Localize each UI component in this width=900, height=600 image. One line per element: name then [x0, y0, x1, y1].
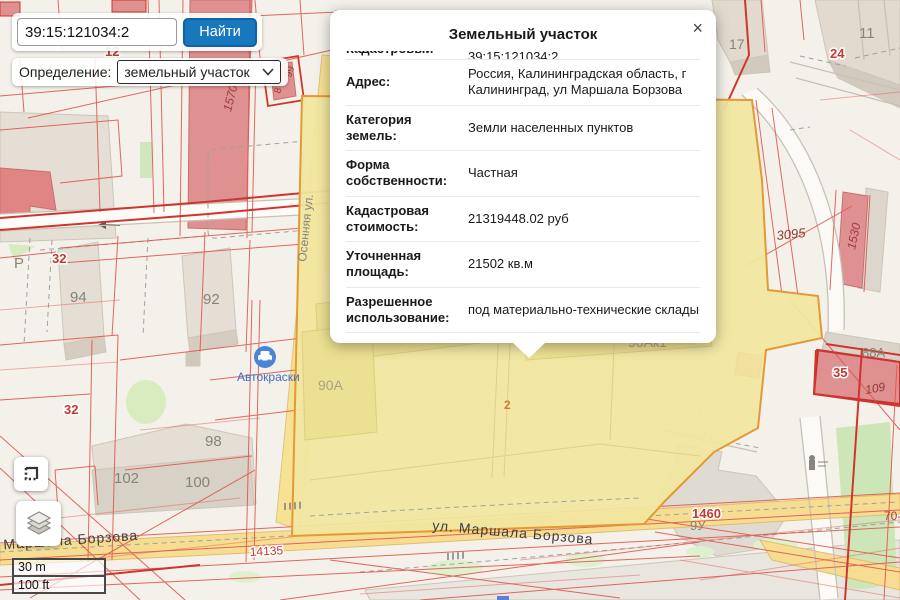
popup-tail	[512, 342, 546, 358]
map-label-7: 94	[70, 289, 87, 306]
row-value: под материально-технические склады	[468, 302, 700, 318]
map-label-21: 11	[859, 25, 875, 42]
layers-button[interactable]	[16, 501, 61, 546]
definition-selected-value: земельный участок	[124, 64, 249, 80]
map-label-23: 88А	[862, 345, 885, 360]
map-label-30: 14135	[249, 543, 283, 559]
chevron-down-icon	[262, 68, 274, 76]
map-label-18: 3095	[776, 225, 807, 243]
row-label: Уточненная площадь:	[346, 248, 458, 281]
search-button[interactable]: Найти	[183, 18, 257, 47]
close-icon[interactable]: ×	[692, 19, 703, 37]
popup-title: Земельный участок	[346, 26, 700, 43]
layers-icon	[25, 511, 53, 537]
search-bar: Найти	[12, 13, 262, 51]
row-value: 21319448.02 руб	[468, 211, 700, 227]
map-label-27: 9У	[690, 518, 706, 533]
scale-imperial: 100 ft	[12, 575, 106, 594]
popup-row-permitted-use: Разрешенное использование: под материаль…	[346, 288, 700, 334]
row-label: Разрешенное использование:	[346, 294, 458, 327]
map-label-6: 32	[52, 251, 66, 266]
map-label-9: 32	[64, 402, 78, 417]
map-label-13: 100	[185, 474, 210, 491]
row-value: 39:15:121034:2	[468, 51, 700, 60]
car-poi-icon[interactable]	[254, 346, 276, 368]
row-value: Земли населенных пунктов	[468, 120, 700, 136]
map-label-12: 102	[114, 470, 139, 487]
scale-metric: 30 m	[12, 558, 106, 575]
popup-row-cadastral-value: Кадастровая стоимость: 21319448.02 руб	[346, 197, 700, 243]
map-label-31: 70-	[884, 509, 900, 523]
popup-row-cadastral-number: Кадастровый номер: 39:15:121034:2	[346, 51, 700, 60]
row-label: Форма собственности:	[346, 157, 458, 190]
map-label-8: 92	[203, 291, 220, 308]
map-label-17: 2	[504, 398, 511, 412]
popup-row-ownership: Форма собственности: Частная	[346, 151, 700, 197]
parcel-info-popup: × Земельный участок Кадастровый номер: 3…	[330, 10, 716, 343]
map-label-20: 17	[729, 36, 745, 52]
search-input[interactable]	[17, 18, 177, 46]
cadastral-map-app: 128991570Осенняя ул.Р32949232Автокраски9…	[0, 0, 900, 600]
map-label-11: 98	[205, 433, 222, 450]
row-value: Частная	[468, 165, 700, 181]
popup-row-land-category: Категория земель: Земли населенных пункт…	[346, 106, 700, 152]
measure-area-icon	[21, 464, 41, 484]
map-label-5: Р	[14, 255, 24, 272]
row-label: Кадастровый номер:	[346, 51, 458, 60]
definition-label: Определение:	[19, 64, 111, 80]
row-value: 21502 кв.м	[468, 256, 700, 272]
popup-row-area: Уточненная площадь: 21502 кв.м	[346, 242, 700, 288]
row-label: Категория земель:	[346, 112, 458, 145]
popup-row-address: Адрес: Россия, Калининградская область, …	[346, 60, 700, 106]
definition-bar: Определение: земельный участок	[12, 58, 288, 86]
row-label: Кадастровая стоимость:	[346, 203, 458, 236]
definition-select[interactable]: земельный участок	[117, 60, 281, 84]
map-label-24: 35	[833, 365, 847, 380]
scale-control: 30 m 100 ft	[12, 558, 106, 594]
misc-blue-mark	[497, 596, 509, 600]
map-label-22: 24	[830, 46, 845, 61]
measure-button[interactable]	[14, 457, 48, 491]
map-label-10: Автокраски	[237, 370, 300, 384]
row-value: Россия, Калининградская область, г Калин…	[468, 66, 700, 99]
row-label: Адрес:	[346, 74, 458, 90]
map-label-15: 90А	[318, 377, 344, 393]
